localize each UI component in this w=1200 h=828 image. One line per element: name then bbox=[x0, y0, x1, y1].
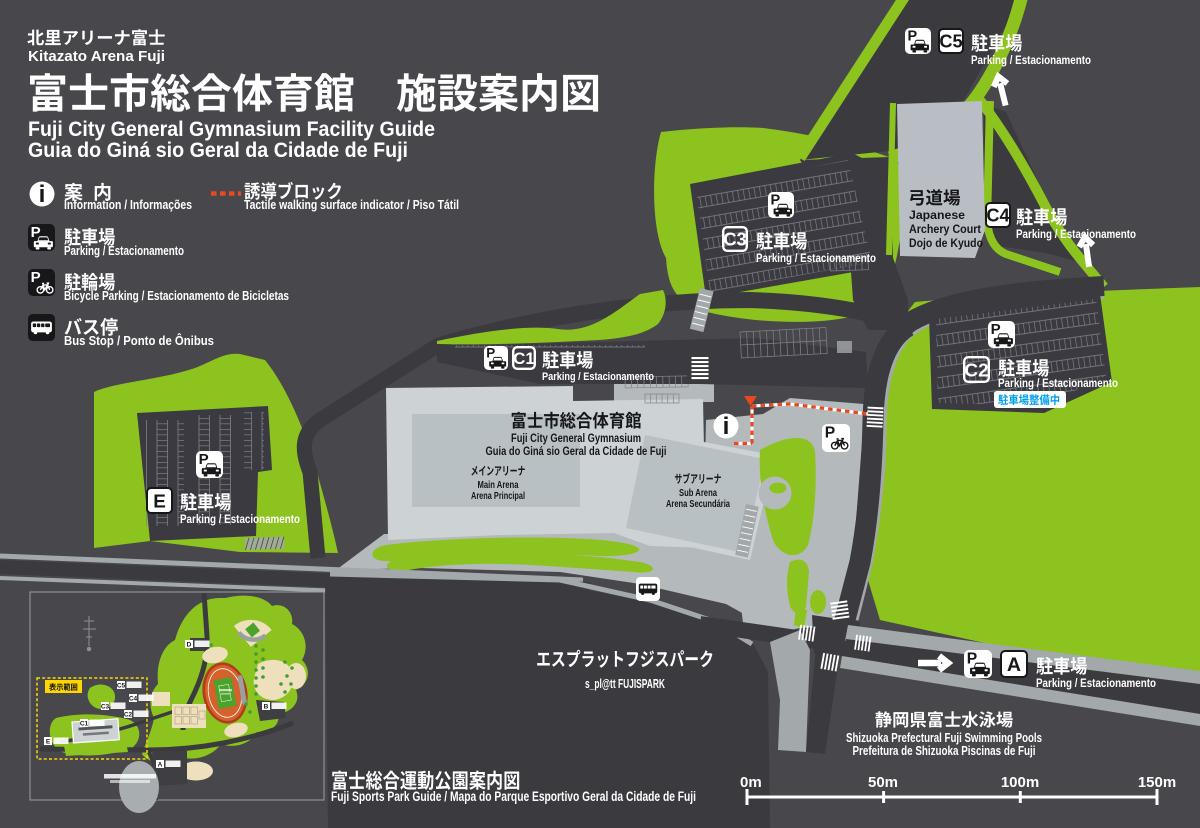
svg-text:Shizuoka Prefectural Fuji Swim: Shizuoka Prefectural Fuji Swimming Pools bbox=[846, 731, 1042, 745]
svg-text:Parking / Estacionamento: Parking / Estacionamento bbox=[64, 244, 184, 258]
svg-text:Fuji City General Gymnasium Fa: Fuji City General Gymnasium Facility Gui… bbox=[28, 118, 435, 141]
svg-text:50m: 50m bbox=[868, 774, 898, 791]
svg-text:C5: C5 bbox=[939, 32, 962, 52]
svg-text:Prefeitura de Shizuoka Piscina: Prefeitura de Shizuoka Piscinas de Fuji bbox=[853, 744, 1036, 758]
svg-text:Parking / Estacionamento: Parking / Estacionamento bbox=[971, 55, 1091, 67]
svg-text:E: E bbox=[46, 739, 51, 746]
svg-text:C5: C5 bbox=[117, 683, 126, 690]
svg-text:100m: 100m bbox=[1001, 774, 1039, 791]
svg-text:i: i bbox=[39, 181, 46, 208]
svg-text:Dojo de Kyudo: Dojo de Kyudo bbox=[909, 238, 983, 250]
svg-text:s_pl@tt FUJISPARK: s_pl@tt FUJISPARK bbox=[585, 677, 665, 691]
svg-text:C1: C1 bbox=[80, 721, 89, 728]
svg-text:Bus Stop / Ponto de Ônibus: Bus Stop / Ponto de Ônibus bbox=[64, 333, 214, 348]
svg-text:Information / Informações: Information / Informações bbox=[64, 198, 192, 212]
svg-text:Parking / Estacionamento: Parking / Estacionamento bbox=[542, 371, 654, 383]
svg-text:Arena Principal: Arena Principal bbox=[471, 490, 525, 502]
svg-text:C4: C4 bbox=[129, 696, 138, 703]
svg-text:P: P bbox=[31, 269, 41, 286]
svg-text:150m: 150m bbox=[1138, 774, 1176, 791]
svg-text:Japanese: Japanese bbox=[909, 210, 965, 222]
svg-text:P: P bbox=[825, 424, 835, 441]
svg-text:D: D bbox=[187, 642, 192, 649]
svg-text:C4: C4 bbox=[986, 206, 1010, 226]
svg-text:Parking / Estacionamento: Parking / Estacionamento bbox=[1016, 229, 1136, 241]
svg-text:A: A bbox=[158, 762, 163, 769]
svg-text:E: E bbox=[153, 491, 166, 512]
svg-text:0m: 0m bbox=[740, 774, 762, 791]
svg-text:C2: C2 bbox=[964, 360, 988, 381]
svg-text:Fuji City General Gymnasium: Fuji City General Gymnasium bbox=[511, 431, 641, 445]
svg-text:Parking / Estacionamento: Parking / Estacionamento bbox=[180, 514, 300, 526]
svg-text:C3: C3 bbox=[101, 704, 110, 711]
svg-text:Guia do Giná sio Geral da Cida: Guia do Giná sio Geral da Cidade de Fuji bbox=[28, 139, 408, 162]
svg-text:C1: C1 bbox=[513, 349, 534, 368]
svg-text:Kitazato Arena Fuji: Kitazato Arena Fuji bbox=[28, 49, 165, 65]
svg-text:Parking / Estacionamento: Parking / Estacionamento bbox=[998, 378, 1118, 390]
svg-text:A: A bbox=[1007, 654, 1021, 676]
svg-text:i: i bbox=[723, 413, 730, 440]
svg-text:C3: C3 bbox=[723, 230, 746, 250]
svg-text:Parking / Estacionamento: Parking / Estacionamento bbox=[756, 253, 876, 265]
svg-text:Tactile walking surface indica: Tactile walking surface indicator / Piso… bbox=[244, 198, 459, 212]
svg-text:Arena Secundária: Arena Secundária bbox=[666, 498, 730, 510]
svg-text:Parking / Estacionamento: Parking / Estacionamento bbox=[1036, 678, 1156, 690]
svg-text:Archery Court: Archery Court bbox=[909, 224, 981, 236]
svg-text:Bicycle Parking / Estacionamen: Bicycle Parking / Estacionamento de Bici… bbox=[64, 289, 289, 303]
svg-text:B: B bbox=[264, 704, 269, 711]
svg-text:Fuji Sports Park Guide / Mapa: Fuji Sports Park Guide / Mapa do Parque … bbox=[331, 789, 696, 804]
svg-text:C2: C2 bbox=[124, 712, 133, 719]
svg-text:Guia do Giná sio Geral da Cida: Guia do Giná sio Geral da Cidade de Fuji bbox=[486, 444, 667, 458]
